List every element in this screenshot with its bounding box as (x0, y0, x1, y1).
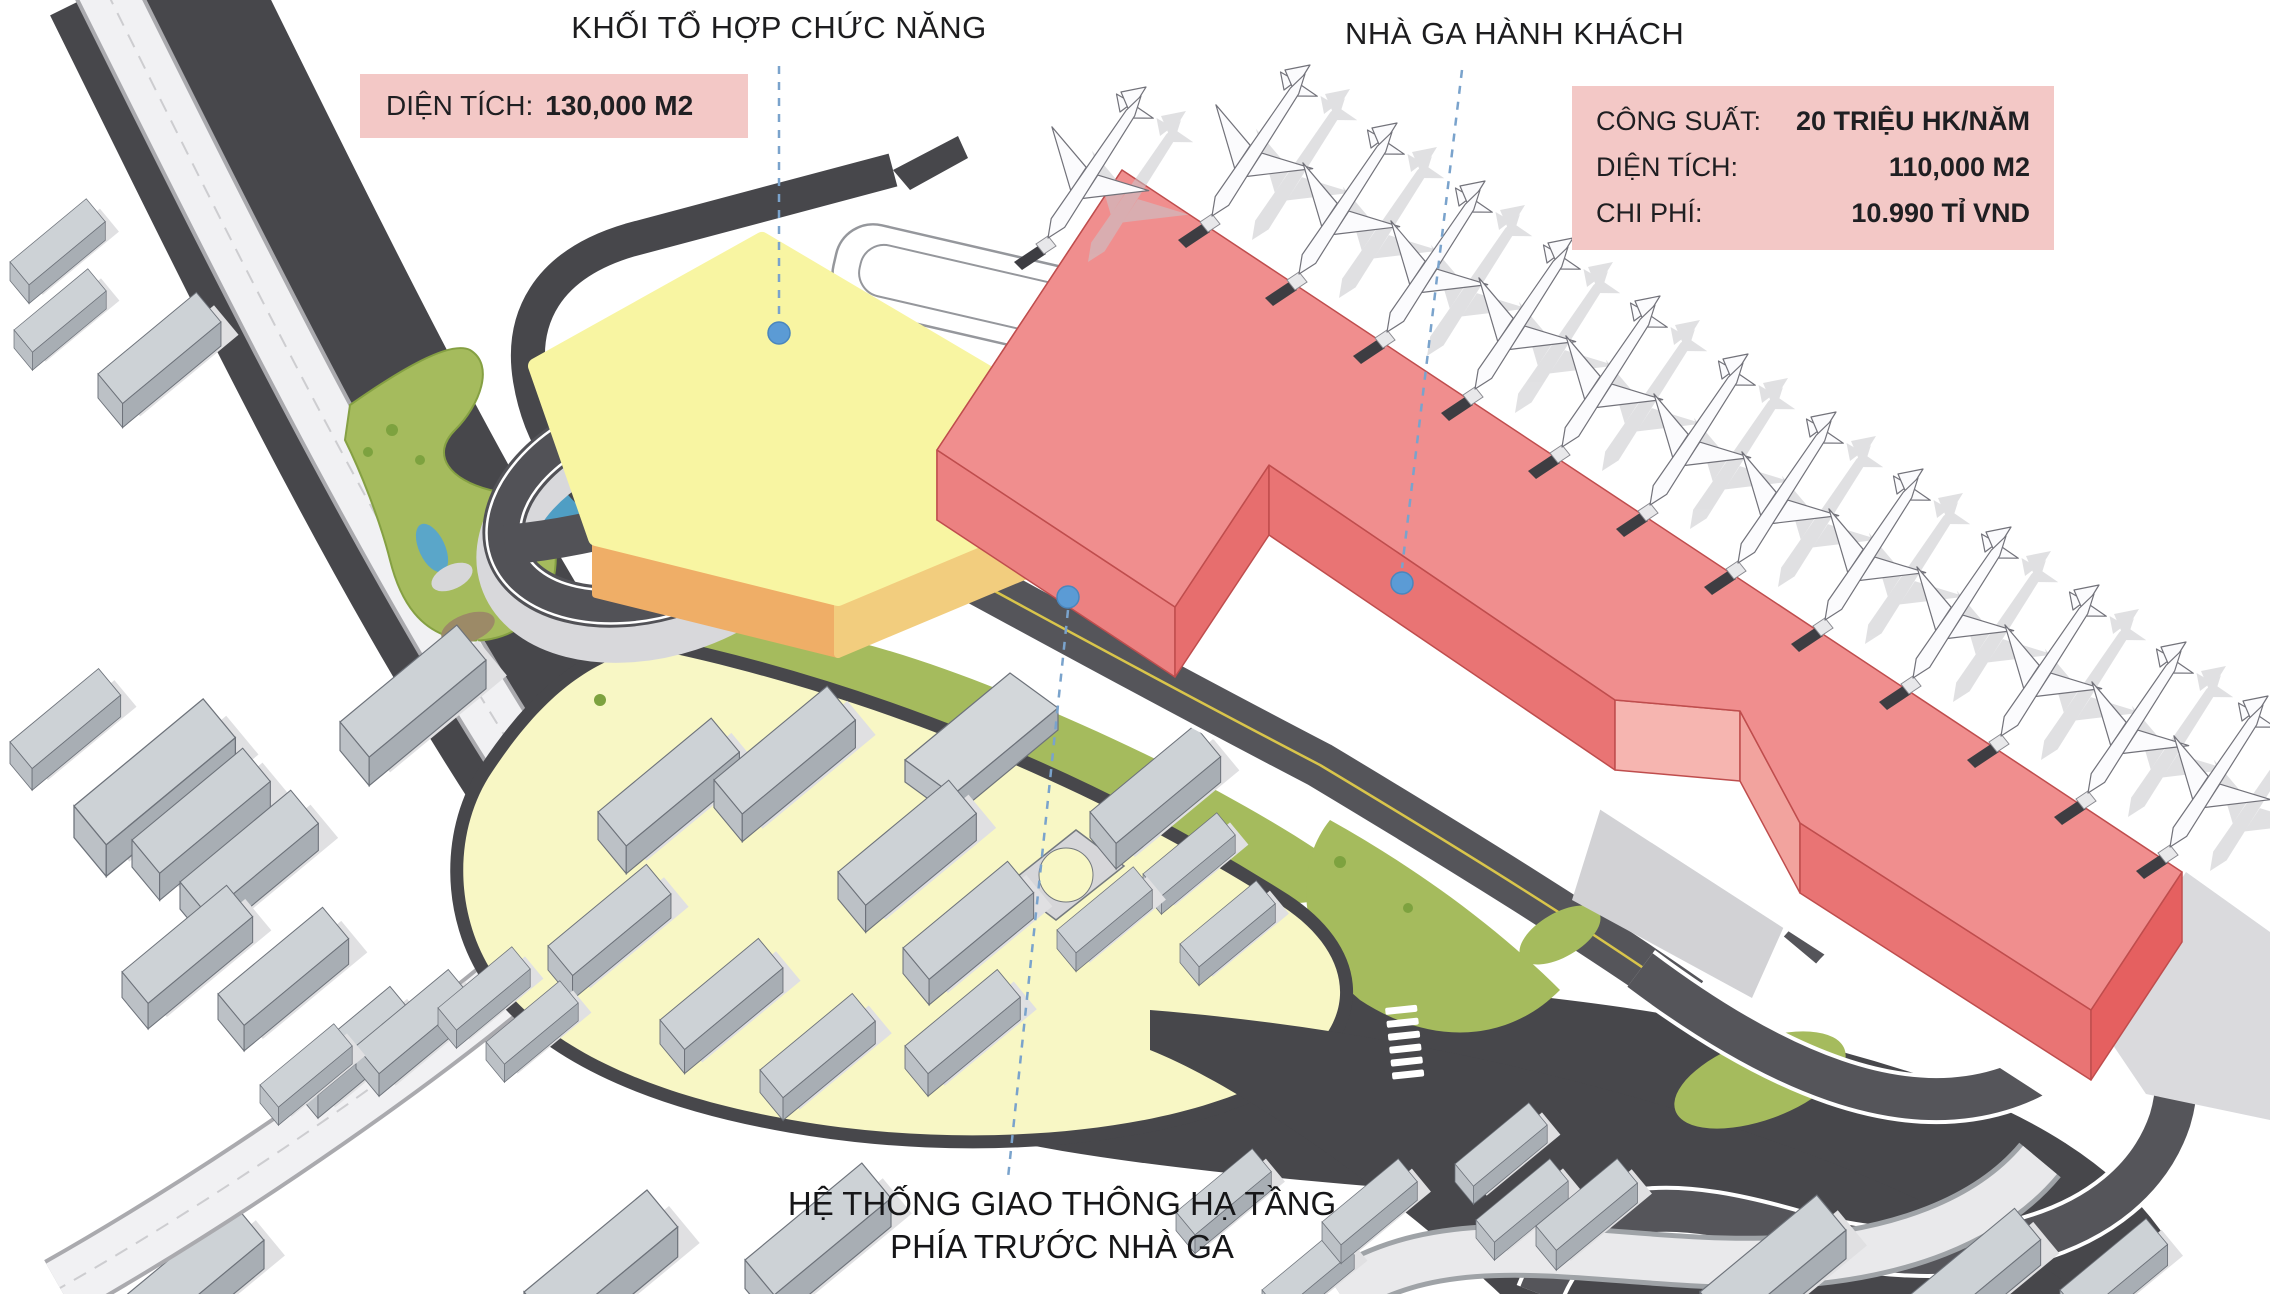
stat-value: 110,000 M2 (1889, 144, 2030, 190)
stat-label: DIỆN TÍCH: (1596, 144, 1738, 190)
stat-value: 130,000 M2 (545, 90, 693, 122)
leader-dot (1057, 586, 1079, 608)
terminal-title: NHÀ GA HÀNH KHÁCH (1345, 16, 1684, 52)
stat-label: DIỆN TÍCH: (386, 90, 533, 122)
stat-value: 10.990 TỈ VND (1851, 190, 2030, 236)
stat-label: CÔNG SUẤT: (1596, 98, 1761, 144)
functional-block-callout: DIỆN TÍCH: 130,000 M2 (360, 74, 748, 138)
leader-dot (768, 322, 790, 344)
stat-row: CÔNG SUẤT: 20 TRIỆU HK/NĂM (1596, 98, 2030, 144)
stat-row: DIỆN TÍCH: 110,000 M2 (1596, 144, 2030, 190)
front-traffic-line2: PHÍA TRƯỚC NHÀ GA (788, 1225, 1336, 1268)
stat-label: CHI PHÍ: (1596, 190, 1703, 236)
stat-value: 20 TRIỆU HK/NĂM (1796, 98, 2030, 144)
functional-block-title: KHỐI TỔ HỢP CHỨC NĂNG (571, 10, 987, 46)
stat-row: CHI PHÍ: 10.990 TỈ VND (1596, 190, 2030, 236)
airport-masterplan-diagram: KHỐI TỔ HỢP CHỨC NĂNG DIỆN TÍCH: 130,000… (0, 0, 2270, 1294)
front-traffic-label: HỆ THỐNG GIAO THÔNG HẠ TẦNG PHÍA TRƯỚC N… (788, 1182, 1336, 1268)
leader-dot (1391, 572, 1413, 594)
front-traffic-line1: HỆ THỐNG GIAO THÔNG HẠ TẦNG (788, 1182, 1336, 1225)
terminal-callout: CÔNG SUẤT: 20 TRIỆU HK/NĂM DIỆN TÍCH: 11… (1572, 86, 2054, 250)
